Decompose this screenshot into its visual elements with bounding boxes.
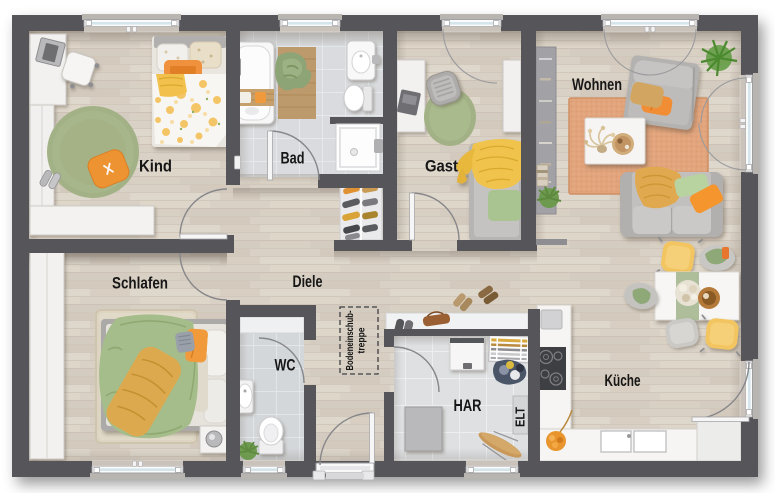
svg-text:treppe: treppe: [356, 327, 368, 353]
svg-text:Bad: Bad: [281, 149, 305, 168]
svg-text:Bodeneinschub-: Bodeneinschub-: [344, 310, 356, 370]
svg-text:Küche: Küche: [605, 371, 641, 390]
svg-text:Diele: Diele: [293, 272, 323, 291]
svg-text:WC: WC: [275, 356, 296, 375]
svg-text:Schlafen: Schlafen: [112, 274, 168, 293]
svg-text:Gast: Gast: [425, 157, 458, 176]
svg-text:Wohnen: Wohnen: [572, 75, 622, 94]
svg-text:ELT: ELT: [514, 407, 528, 427]
svg-text:Kind: Kind: [139, 157, 172, 176]
svg-text:HAR: HAR: [454, 396, 482, 415]
